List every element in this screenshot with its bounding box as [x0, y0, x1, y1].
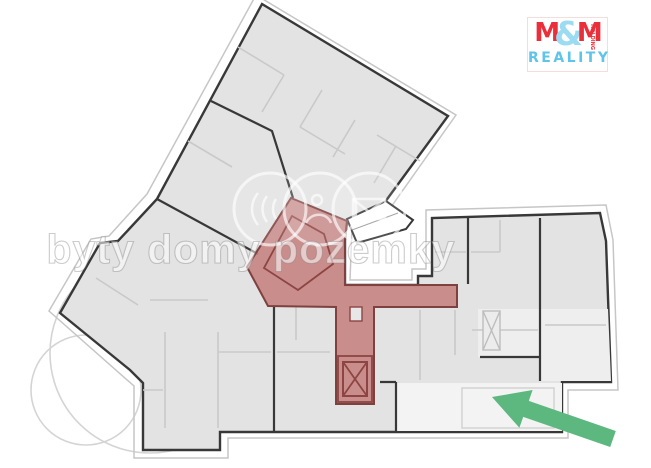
watermark-text: byty domy pozemky	[47, 226, 456, 272]
logo-holding-text: HOLDING	[576, 24, 607, 50]
common-elevator	[483, 311, 500, 350]
logo-mm-text: M&M HOLDING	[528, 18, 607, 49]
elevator-shaft	[338, 356, 372, 402]
floorplan-image: byty domy pozemky M&M HOLDING REALITY	[0, 0, 651, 468]
watermark: byty domy pozemky	[47, 173, 456, 272]
mm-reality-logo: M&M HOLDING REALITY	[527, 17, 608, 72]
unit-notch	[350, 307, 362, 321]
